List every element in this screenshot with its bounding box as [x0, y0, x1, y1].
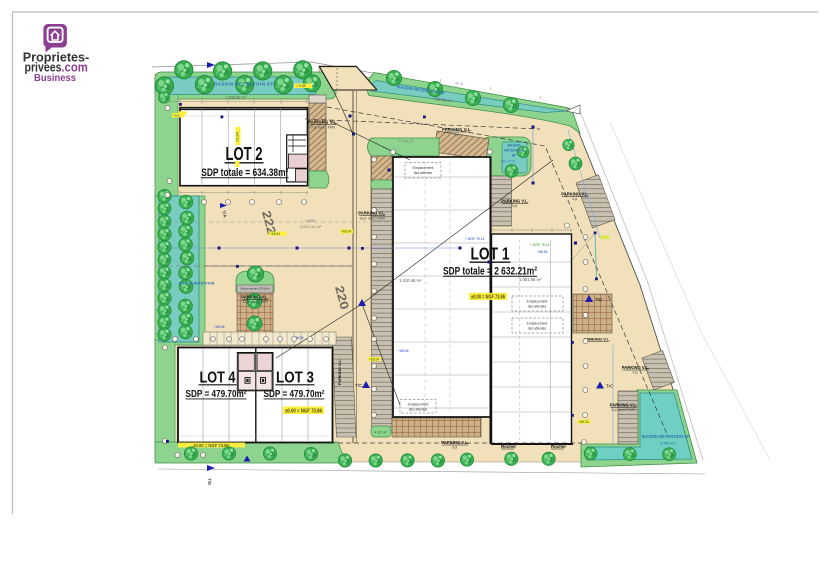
svg-text:des attentes: des attentes [414, 171, 433, 175]
svg-text:+ NGF 75.14: + NGF 75.14 [530, 243, 550, 247]
svg-text:73.84: 73.84 [235, 131, 240, 142]
svg-text:4,521.41 m²: 4,521.41 m² [300, 224, 322, 229]
svg-text:PARKING V.L.: PARKING V.L. [337, 359, 342, 385]
svg-text:1 081.65 m²: 1 081.65 m² [519, 277, 542, 282]
svg-text:+ NGF 75.14: + NGF 75.14 [465, 237, 485, 241]
svg-text:des attentes: des attentes [528, 305, 547, 309]
svg-text:T/B: T/B [207, 478, 212, 485]
svg-text:+68.54: +68.54 [341, 230, 351, 234]
svg-text:LOT 1: LOT 1 [471, 243, 510, 263]
svg-text:PARKING V.L.: PARKING V.L. [441, 440, 468, 445]
svg-text:+68.54: +68.54 [537, 250, 548, 254]
svg-text:9 pl.: 9 pl. [452, 446, 458, 450]
svg-text:+68.54: +68.54 [369, 357, 379, 361]
svg-text:Rocher: Rocher [551, 444, 566, 449]
svg-text:9 pl.: 9 pl. [512, 204, 518, 208]
svg-text:Emplacement: Emplacement [413, 166, 434, 170]
svg-text:Stationnement 23.92m²: Stationnement 23.92m² [240, 287, 270, 291]
svg-text:+68.06: +68.06 [398, 349, 409, 353]
svg-text:BASSIN RETENTION EP: BASSIN RETENTION EP [214, 82, 274, 87]
svg-text:PARKING V.L.: PARKING V.L. [622, 365, 649, 370]
svg-text:4.91 m²: 4.91 m² [374, 430, 388, 435]
svg-text:LOT 3: LOT 3 [276, 369, 314, 386]
svg-text:Emplacement: Emplacement [527, 322, 548, 326]
svg-text:3+545.4m²: 3+545.4m² [660, 442, 677, 446]
svg-text:Rocher: Rocher [501, 444, 516, 449]
svg-text:TrD: TrD [595, 297, 603, 302]
svg-text:des attentes: des attentes [528, 327, 547, 331]
svg-text:Emplacement: Emplacement [527, 300, 548, 304]
svg-text:RETENTION: RETENTION [504, 149, 524, 153]
svg-text:LOT 2: LOT 2 [226, 144, 263, 164]
svg-text:12 pl. dont 1 PMR: 12 pl. dont 1 PMR [242, 300, 268, 304]
svg-text:95.78: 95.78 [455, 81, 464, 86]
svg-text:PARKING V.L.: PARKING V.L. [308, 120, 338, 125]
svg-text:PARKING V.L.: PARKING V.L. [561, 192, 588, 197]
svg-text:SDP totale = 634.38m²: SDP totale = 634.38m² [201, 167, 288, 179]
svg-text:PARKING V.L.: PARKING V.L. [442, 127, 472, 132]
svg-text:Business: Business [34, 72, 76, 84]
svg-text:BASSIN: BASSIN [508, 144, 521, 148]
svg-text:±0.00 = NGF 73.86: ±0.00 = NGF 73.86 [471, 294, 505, 300]
svg-text:18 pl. dont 2 PMR: 18 pl. dont 2 PMR [359, 217, 385, 221]
svg-text:3 pl.: 3 pl. [454, 133, 460, 137]
svg-text:SDP = 479.70m²: SDP = 479.70m² [186, 388, 247, 400]
svg-text:+68.54: +68.54 [579, 420, 589, 424]
svg-text:4 pl.: 4 pl. [572, 197, 578, 201]
svg-text:+ 9.88: + 9.88 [296, 84, 306, 88]
svg-text:±0.00 = NGF 73.86: ±0.00 = NGF 73.86 [285, 408, 322, 414]
svg-text:+68.06: +68.06 [214, 325, 225, 329]
svg-text:+68.54: +68.54 [270, 232, 280, 236]
svg-text:8 pl. dont 2 PMR: 8 pl. dont 2 PMR [612, 408, 636, 412]
svg-text:des attentes: des attentes [409, 408, 428, 412]
svg-text:Emplacement: Emplacement [408, 403, 429, 407]
svg-text:77.04 m²: 77.04 m² [398, 139, 414, 144]
svg-text:TrC: TrC [606, 384, 614, 389]
svg-text:T/C: T/C [355, 383, 363, 388]
svg-text:SDP totale = 2 632.21m²: SDP totale = 2 632.21m² [443, 265, 537, 277]
svg-text:EP: EP [512, 154, 517, 158]
svg-text:4 pl.: 4 pl. [632, 371, 638, 375]
svg-text:BASSIN RETENTION EP: BASSIN RETENTION EP [642, 434, 690, 439]
svg-text:SDP = 479.70m²: SDP = 479.70m² [264, 388, 325, 400]
svg-text:1 410.46 m²: 1 410.46 m² [399, 278, 422, 283]
svg-text:PARKING V.L.: PARKING V.L. [241, 295, 268, 300]
svg-text:BASSIN RETENTION: BASSIN RETENTION [179, 282, 215, 286]
svg-text:LOT 4: LOT 4 [200, 369, 236, 386]
svg-text:1 536.89 m²: 1 536.89 m² [225, 95, 247, 100]
svg-text:±0.00 = NGF 73.86: ±0.00 = NGF 73.86 [193, 443, 229, 448]
svg-text:100.77 m²: 100.77 m² [501, 160, 517, 164]
svg-text:XI456: XI456 [305, 218, 316, 223]
svg-text:7 pl. dont 1 PMR: 7 pl. dont 1 PMR [311, 126, 335, 130]
svg-text:PARKING V.L.: PARKING V.L. [501, 199, 528, 204]
svg-text:PARKING V.L.: PARKING V.L. [610, 403, 637, 408]
